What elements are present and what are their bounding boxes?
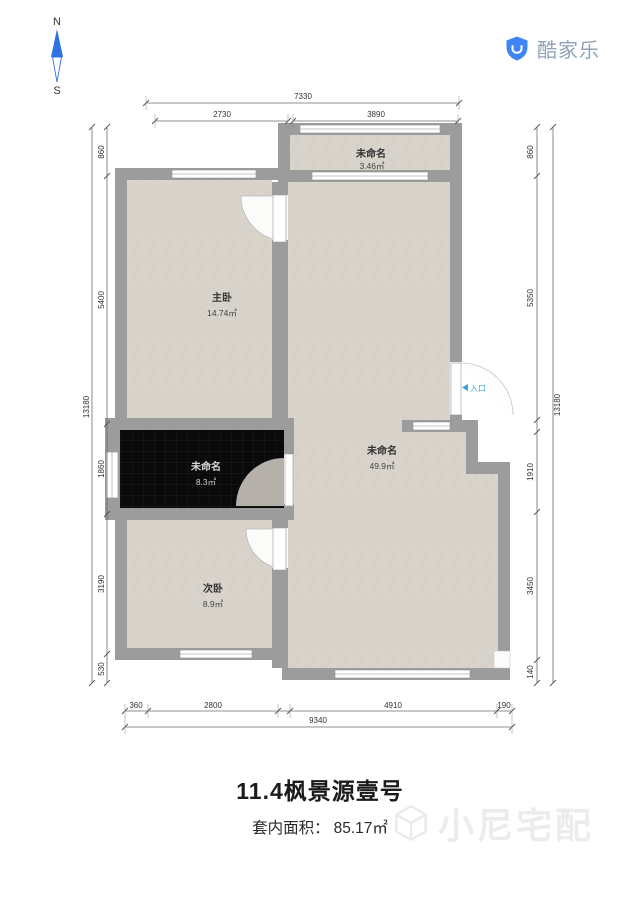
room-area-dark: 8.3㎡ [196, 477, 217, 487]
wall [272, 182, 288, 195]
wall [115, 168, 127, 418]
entry-text: 入口 [470, 384, 486, 393]
wall [284, 504, 294, 520]
dim-top-overall: 7330 [294, 92, 312, 101]
room-name-balcony: 未命名 [355, 147, 386, 160]
floor-plan-canvas: N S [0, 0, 640, 760]
floorplan-page: N S [0, 0, 640, 905]
window [106, 452, 118, 498]
corner-notch [494, 651, 510, 668]
compass-south-label: S [53, 85, 60, 97]
wall [450, 123, 462, 362]
wall [115, 520, 127, 660]
dim-bottom-overall: 9340 [309, 716, 327, 725]
dim-left-seg3: 1860 [97, 460, 106, 478]
dim-right-overall: 13180 [553, 393, 562, 416]
dim-left-seg4: 3190 [97, 575, 106, 593]
dim-left-seg5: 530 [97, 662, 106, 676]
window [413, 422, 450, 430]
window [300, 125, 440, 133]
room-area-living: 49.9㎡ [369, 461, 395, 471]
wall [284, 430, 294, 454]
compass-needle-icon [51, 29, 63, 82]
wall [272, 568, 288, 668]
room-name-master: 主卧 [212, 291, 232, 304]
page-title: 11.4枫景源壹号 [0, 772, 640, 806]
kujiale-brand-text: 酷家乐 [537, 34, 600, 63]
room-floors [120, 135, 498, 668]
wall [272, 520, 288, 528]
area-label: 套内面积： [252, 820, 330, 837]
dim-left-seg2: 5400 [97, 291, 106, 309]
room-area-master: 14.74㎡ [207, 308, 237, 318]
dim-top-seg2: 3890 [367, 110, 385, 119]
entry-label: 入口 [462, 384, 486, 393]
window [312, 172, 428, 180]
dim-bottom-seg2: 2800 [204, 701, 222, 710]
dim-left-overall: 13180 [82, 395, 91, 418]
compass-north-label: N [53, 16, 61, 28]
wall [498, 462, 510, 680]
dim-right-seg4: 3450 [526, 577, 535, 595]
room-name-living: 未命名 [366, 444, 397, 457]
kujiale-logo: 酷家乐 [504, 34, 600, 63]
dim-right-seg1: 860 [526, 145, 535, 159]
dim-bottom-seg4: 190 [497, 701, 511, 710]
room-area-balcony: 3.46㎡ [359, 161, 385, 171]
dim-bottom-seg1: 360 [129, 701, 143, 710]
window [335, 670, 470, 678]
dim-right-seg5: 140 [526, 665, 535, 679]
dim-bottom-seg3: 4910 [384, 701, 402, 710]
room-area-second: 8.9㎡ [203, 599, 224, 609]
window [172, 170, 256, 178]
area-value: 85.17㎡ [334, 820, 388, 837]
dim-right-seg2: 5350 [526, 289, 535, 307]
room-name-dark: 未命名 [190, 460, 221, 473]
area-summary: 套内面积：85.17㎡ [0, 816, 640, 838]
entry-arrow-icon [462, 384, 468, 391]
wall [272, 240, 288, 418]
dim-top-seg1: 2730 [213, 110, 231, 119]
compass: N S [51, 16, 63, 97]
room-name-second: 次卧 [203, 582, 223, 595]
wall [105, 508, 294, 520]
wall [105, 418, 294, 430]
kujiale-logo-icon [504, 35, 530, 62]
window [180, 650, 252, 658]
dim-left-seg1: 860 [97, 145, 106, 159]
dim-right-seg3: 1910 [526, 463, 535, 481]
